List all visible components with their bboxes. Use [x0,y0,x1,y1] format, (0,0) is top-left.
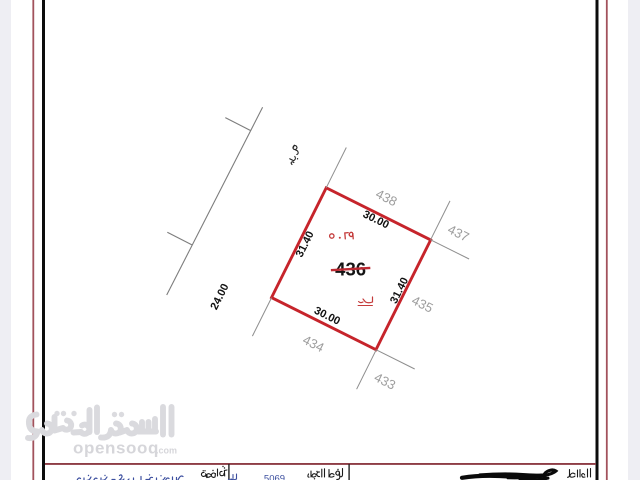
svg-text:opensooq: opensooq [73,439,159,458]
svg-text:.com: .com [156,446,177,456]
svg-text:5069: 5069 [264,474,285,480]
